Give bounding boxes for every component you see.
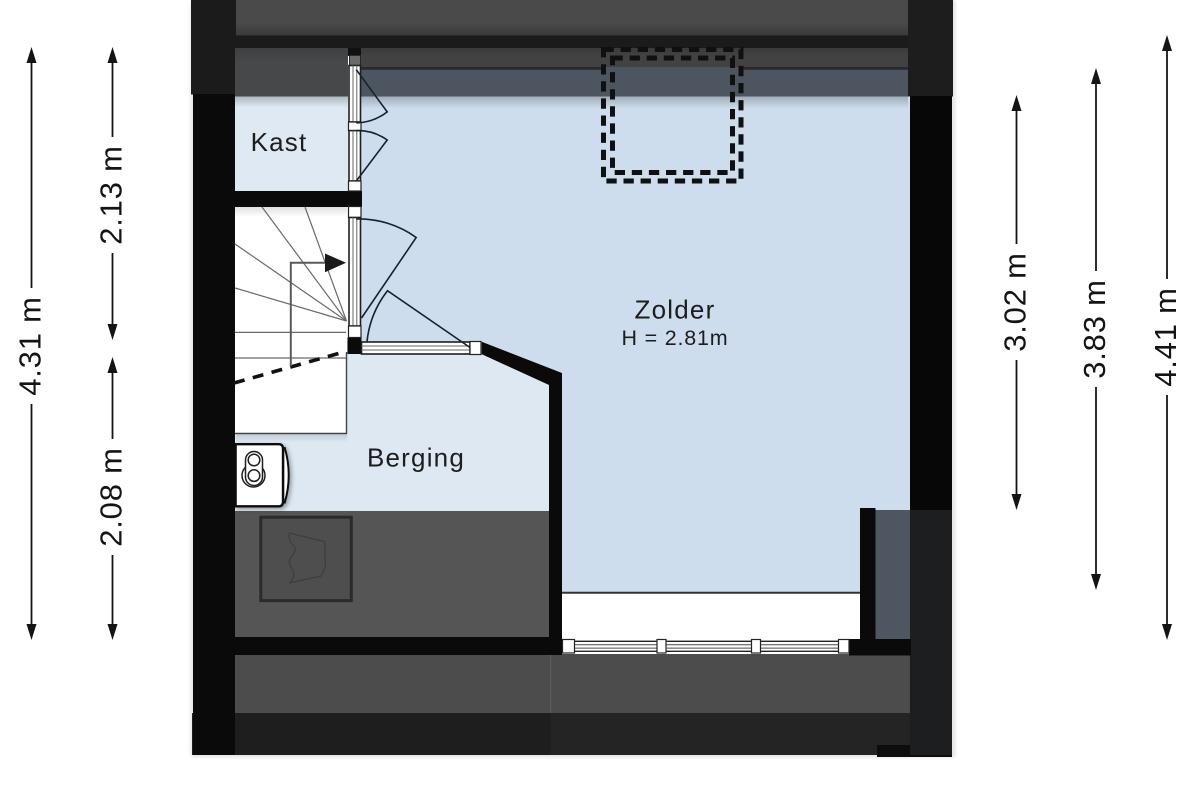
svg-text:4.31 m: 4.31 m (13, 296, 48, 396)
svg-text:2.08 m: 2.08 m (94, 447, 129, 547)
svg-text:2.13 m: 2.13 m (94, 145, 129, 245)
svg-text:H = 2.81m: H = 2.81m (622, 326, 729, 350)
svg-text:4.41 m: 4.41 m (1148, 287, 1183, 387)
svg-text:3.02 m: 3.02 m (998, 252, 1033, 352)
svg-text:Kast: Kast (251, 127, 308, 157)
svg-text:Berging: Berging (367, 443, 465, 473)
svg-text:3.83 m: 3.83 m (1077, 279, 1112, 379)
svg-text:Zolder: Zolder (635, 295, 716, 325)
